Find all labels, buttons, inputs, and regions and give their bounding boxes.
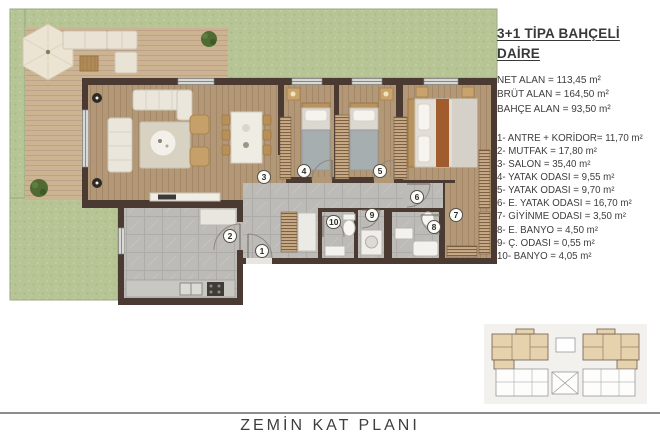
room-badge-4: 4 [297,164,311,178]
info-panel: 3+1 TİPA BAHÇELİ DAİRE NET ALAN = 113,45… [497,24,657,263]
room-list-item: 5- YATAK ODASI = 9,70 m² [497,184,657,197]
floor-plan-page: 1 2 3 4 5 6 7 8 9 10 3+1 TİPA BAHÇELİ DA… [0,0,660,441]
room-list-item: 2- MUTFAK = 17,80 m² [497,145,657,158]
net-area-stat: NET ALAN = 113,45 m² [497,74,657,89]
room-badge-6: 6 [410,190,424,204]
room-list-item: 7- GİYİNME ODASI = 3,50 m² [497,210,657,223]
apartment-type-title-line2: DAİRE [497,44,657,64]
apartment-type-title-line1: 3+1 TİPA BAHÇELİ [497,24,657,44]
garden-area-stat: BAHÇE ALAN = 93,50 m² [497,103,657,118]
gross-area-stat: BRÜT ALAN = 164,50 m² [497,88,657,103]
room-list-item: 1- ANTRE + KORİDOR= 11,70 m² [497,132,657,145]
room-badge-5: 5 [373,164,387,178]
floor-caption: ZEMİN KAT PLANI [0,417,660,435]
room-list-item: 4- YATAK ODASI = 9,55 m² [497,171,657,184]
room-area-list: 1- ANTRE + KORİDOR= 11,70 m² 2- MUTFAK =… [497,132,657,263]
building-key-plan [484,324,647,404]
room-badge-1: 1 [255,244,269,258]
room-badge-9: 9 [365,208,379,222]
room-badge-8: 8 [427,220,441,234]
area-stats: NET ALAN = 113,45 m² BRÜT ALAN = 164,50 … [497,74,657,118]
room-list-item: 9- Ç. ODASI = 0,55 m² [497,237,657,250]
room-list-item: 3- SALON = 35,40 m² [497,158,657,171]
room-list-item: 6- E. YATAK ODASI = 16,70 m² [497,197,657,210]
room-badge-7: 7 [449,208,463,222]
room-list-item: 8- E. BANYO = 4,50 m² [497,224,657,237]
room-badge-2: 2 [223,229,237,243]
footer-divider [0,412,660,414]
room-list-item: 10- BANYO = 4,05 m² [497,250,657,263]
room-badge-3: 3 [257,170,271,184]
